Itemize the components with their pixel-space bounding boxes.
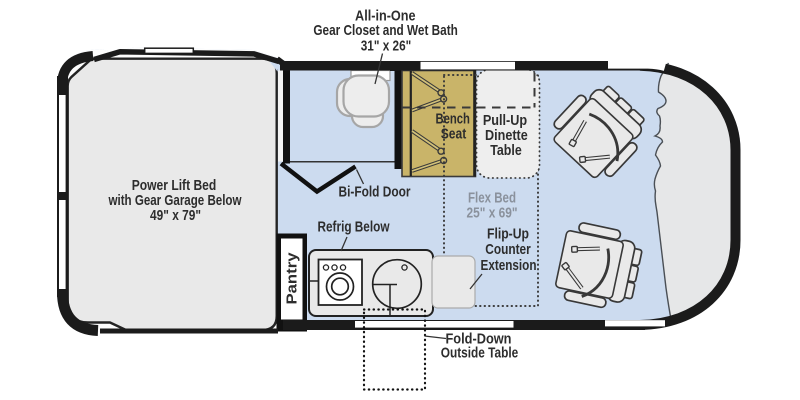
svg-text:Pull-Up: Pull-Up bbox=[483, 113, 527, 129]
svg-text:with Gear Garage Below: with Gear Garage Below bbox=[108, 193, 242, 209]
svg-text:31" x 26": 31" x 26" bbox=[361, 38, 412, 54]
svg-text:Outside Table: Outside Table bbox=[441, 346, 519, 362]
svg-text:Gear Closet and Wet Bath: Gear Closet and Wet Bath bbox=[313, 23, 458, 39]
svg-text:Extension: Extension bbox=[481, 258, 537, 274]
svg-text:Pantry: Pantry bbox=[285, 251, 301, 304]
svg-text:Bench: Bench bbox=[435, 112, 470, 128]
svg-text:Flex Bed: Flex Bed bbox=[468, 191, 516, 207]
svg-text:25" x 69": 25" x 69" bbox=[467, 206, 518, 222]
svg-text:All-in-One: All-in-One bbox=[355, 8, 416, 24]
svg-text:Flip-Up: Flip-Up bbox=[487, 227, 529, 243]
svg-text:Power Lift Bed: Power Lift Bed bbox=[132, 178, 217, 194]
svg-text:Bi-Fold Door: Bi-Fold Door bbox=[339, 185, 411, 201]
svg-text:Table: Table bbox=[490, 143, 522, 159]
svg-text:Counter: Counter bbox=[485, 242, 531, 258]
svg-text:Refrig Below: Refrig Below bbox=[318, 220, 391, 236]
svg-text:49" x 79": 49" x 79" bbox=[150, 208, 201, 224]
svg-text:Dinette: Dinette bbox=[485, 128, 528, 144]
svg-text:Seat: Seat bbox=[441, 127, 467, 143]
